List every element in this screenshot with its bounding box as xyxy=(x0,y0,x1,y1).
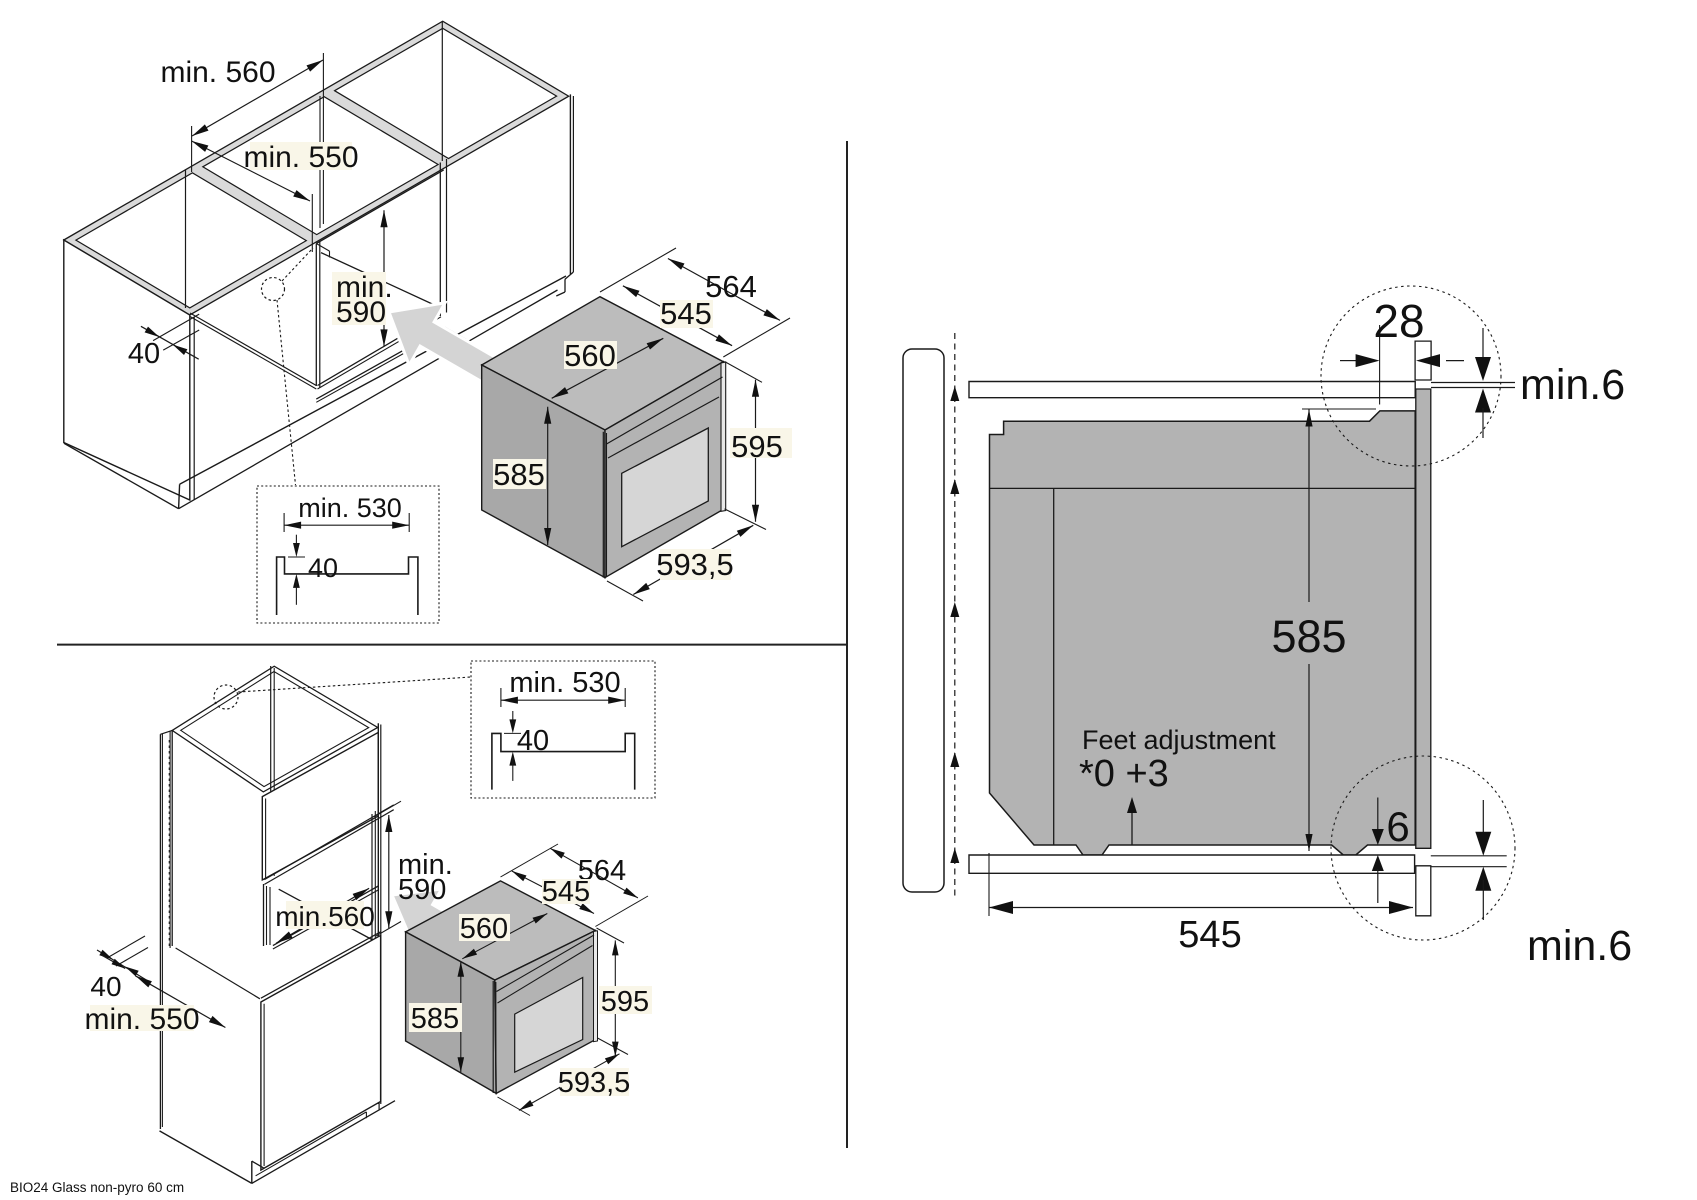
svg-text:590: 590 xyxy=(336,296,386,329)
svg-text:585: 585 xyxy=(493,457,545,492)
svg-text:min.6: min.6 xyxy=(1527,922,1632,970)
svg-text:585: 585 xyxy=(411,1003,459,1035)
svg-text:560: 560 xyxy=(564,338,616,373)
svg-text:595: 595 xyxy=(601,986,649,1018)
svg-text:545: 545 xyxy=(542,876,590,908)
svg-text:560: 560 xyxy=(460,913,508,945)
svg-text:Feet adjustment: Feet adjustment xyxy=(1082,725,1276,755)
svg-text:40: 40 xyxy=(90,971,121,1002)
svg-text:585: 585 xyxy=(1271,611,1346,662)
svg-text:*0 +3: *0 +3 xyxy=(1079,753,1169,795)
svg-text:564: 564 xyxy=(705,269,757,304)
svg-text:545: 545 xyxy=(1178,914,1241,956)
svg-text:590: 590 xyxy=(398,874,446,906)
svg-text:min. 530: min. 530 xyxy=(298,493,402,523)
svg-text:BIO24 Glass non-pyro 60 cm: BIO24 Glass non-pyro 60 cm xyxy=(10,1180,184,1195)
svg-text:40: 40 xyxy=(517,725,549,757)
svg-text:40: 40 xyxy=(128,338,160,370)
svg-text:min. 560: min. 560 xyxy=(160,56,275,89)
svg-text:593,5: 593,5 xyxy=(558,1067,631,1099)
svg-text:min.6: min.6 xyxy=(1520,361,1625,409)
svg-text:28: 28 xyxy=(1373,295,1424,347)
svg-text:min. 550: min. 550 xyxy=(84,1003,199,1036)
svg-text:40: 40 xyxy=(308,553,338,583)
svg-text:min. 550: min. 550 xyxy=(243,141,358,174)
svg-text:593,5: 593,5 xyxy=(656,547,734,582)
svg-text:min.560: min.560 xyxy=(275,901,375,932)
svg-text:min. 530: min. 530 xyxy=(509,667,620,699)
svg-text:545: 545 xyxy=(660,296,712,331)
svg-text:6: 6 xyxy=(1386,803,1409,850)
svg-text:595: 595 xyxy=(731,429,783,464)
